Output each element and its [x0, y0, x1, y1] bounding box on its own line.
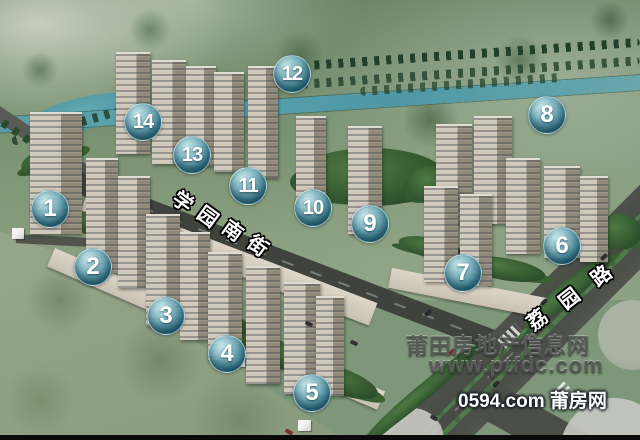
building-tower	[506, 158, 540, 254]
marker-number: 6	[555, 232, 568, 260]
watermark-site-url: www.ptfdc.com	[429, 353, 604, 379]
marker-number: 7	[456, 259, 469, 287]
building-tower	[248, 66, 278, 178]
building-tower	[580, 176, 608, 262]
building-marker-13[interactable]: 13	[173, 136, 211, 174]
building-marker-12[interactable]: 12	[273, 55, 311, 93]
building-marker-7[interactable]: 7	[444, 254, 482, 292]
watermark-portal: 0594.com 莆房网	[458, 386, 607, 413]
building-marker-11[interactable]: 11	[229, 167, 267, 205]
marker-number: 3	[159, 302, 172, 330]
marker-number: 10	[303, 197, 323, 220]
marker-number: 4	[220, 340, 233, 368]
marker-number: 8	[540, 101, 553, 129]
building-marker-2[interactable]: 2	[74, 248, 112, 286]
building-marker-6[interactable]: 6	[543, 227, 581, 265]
building-marker-4[interactable]: 4	[208, 335, 246, 373]
building-marker-9[interactable]: 9	[351, 205, 389, 243]
building-marker-8[interactable]: 8	[528, 96, 566, 134]
car	[350, 339, 359, 346]
marker-number: 12	[282, 63, 302, 86]
corner-plaza	[598, 300, 640, 370]
building-tower	[246, 266, 280, 384]
marker-number: 5	[305, 379, 318, 407]
marker-number: 1	[43, 195, 56, 223]
building-marker-1[interactable]: 1	[31, 190, 69, 228]
marker-number: 9	[363, 210, 376, 238]
building-marker-3[interactable]: 3	[147, 297, 185, 335]
utility-cube	[298, 420, 311, 431]
bottom-letterbox-bar	[0, 435, 640, 440]
building-tower	[180, 232, 210, 340]
building-marker-10[interactable]: 10	[294, 189, 332, 227]
building-tower	[214, 72, 244, 172]
utility-cube	[12, 228, 24, 239]
marker-number: 14	[133, 111, 153, 134]
marker-number: 2	[86, 253, 99, 281]
aerial-site-plan: 1 2 3 4 5 6 7 8 9 10 11 12 13 14 学 园 南 街…	[0, 0, 640, 440]
building-marker-5[interactable]: 5	[293, 374, 331, 412]
marker-number: 11	[238, 175, 257, 198]
building-marker-14[interactable]: 14	[124, 103, 162, 141]
marker-number: 13	[182, 144, 202, 167]
